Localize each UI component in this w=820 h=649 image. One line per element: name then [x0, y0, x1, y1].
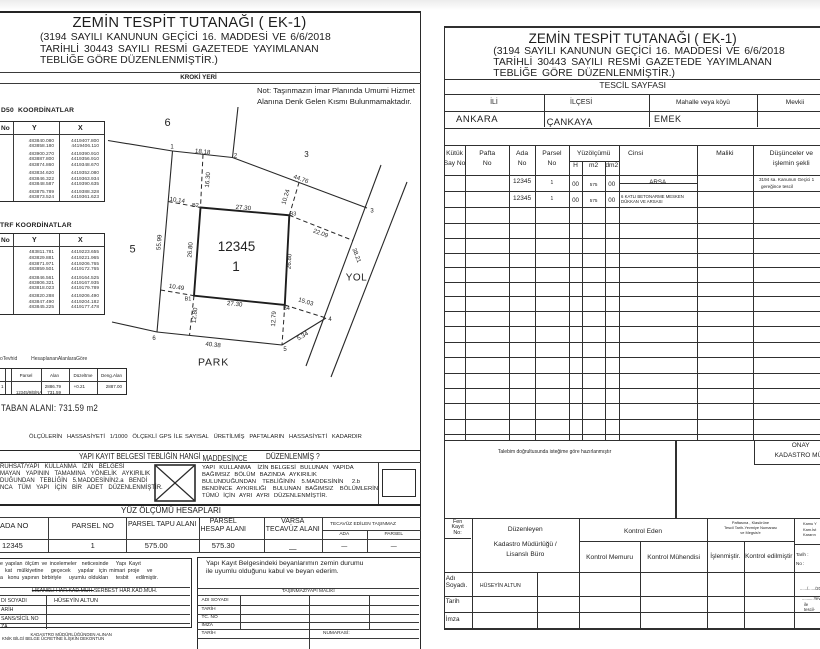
svg-text:1: 1: [232, 259, 240, 274]
svg-text:4: 4: [328, 317, 332, 323]
svg-text:15.03: 15.03: [297, 296, 314, 307]
svg-text:55.99: 55.99: [155, 234, 163, 251]
svg-text:26.80: 26.80: [186, 241, 194, 258]
svg-text:5: 5: [283, 347, 287, 353]
svg-text:3: 3: [304, 150, 309, 159]
svg-text:40.38: 40.38: [205, 341, 222, 350]
svg-text:6: 6: [152, 336, 156, 342]
svg-text:YOL: YOL: [346, 273, 368, 284]
svg-text:5.34: 5.34: [296, 330, 310, 342]
svg-text:6: 6: [164, 117, 170, 129]
svg-text:27.30: 27.30: [235, 204, 252, 212]
svg-text:27.30: 27.30: [227, 300, 244, 309]
svg-text:5: 5: [129, 244, 135, 256]
svg-text:1: 1: [170, 145, 174, 151]
svg-text:B3: B3: [290, 212, 297, 218]
svg-text:PARK: PARK: [198, 357, 229, 369]
svg-text:10.24: 10.24: [280, 188, 291, 205]
svg-text:18.18: 18.18: [195, 148, 212, 157]
svg-text:B2: B2: [192, 203, 199, 209]
svg-text:26.80: 26.80: [286, 253, 294, 269]
svg-text:16.30: 16.30: [204, 171, 212, 188]
svg-text:12.80: 12.80: [191, 307, 200, 324]
svg-text:B1: B1: [185, 297, 192, 303]
svg-text:B4: B4: [283, 306, 290, 312]
svg-text:22.09: 22.09: [312, 228, 329, 240]
svg-text:3: 3: [370, 209, 374, 215]
svg-text:10.14: 10.14: [169, 196, 186, 205]
svg-text:12.79: 12.79: [270, 310, 278, 326]
svg-text:10.49: 10.49: [168, 283, 185, 292]
svg-text:2: 2: [234, 154, 238, 160]
svg-text:12345: 12345: [218, 239, 256, 254]
svg-text:38.21: 38.21: [350, 248, 361, 265]
